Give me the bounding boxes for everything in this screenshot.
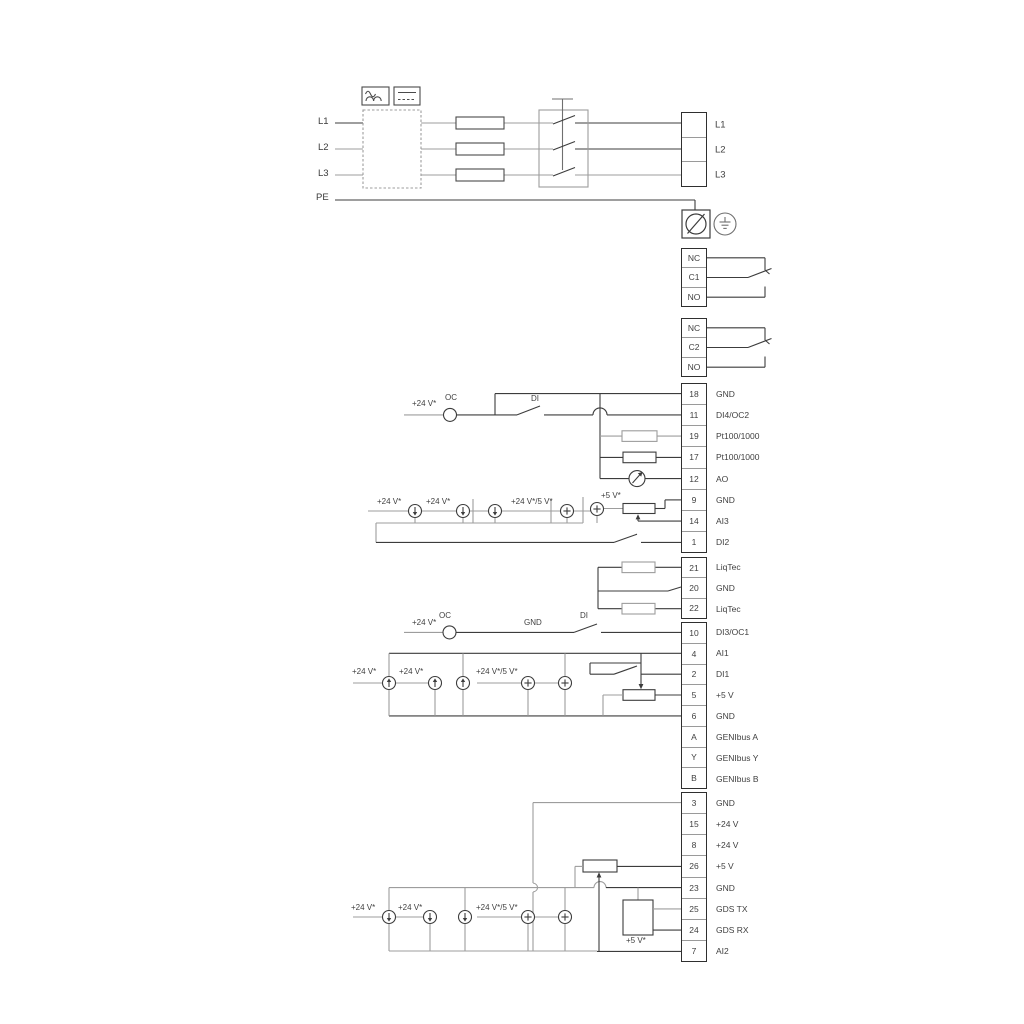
terminal-cell-a: A <box>682 726 706 747</box>
relay1-cell-c1: C1 <box>682 267 706 286</box>
terminal-number: 18 <box>689 389 698 399</box>
power-terminal-label-l1: L1 <box>715 120 726 130</box>
terminal-cell-25: 25 <box>682 898 706 919</box>
terminal-number: 12 <box>689 474 698 484</box>
relay1-cell-no: NO <box>682 287 706 306</box>
io-terminal-block-3: 3 15 8 26 23 25 24 7 <box>681 792 707 962</box>
terminal-number: 19 <box>689 431 698 441</box>
terminal-cell-15: 15 <box>682 813 706 834</box>
annotation-24v: +24 V* <box>351 904 375 912</box>
annotation-di: DI <box>580 612 588 620</box>
terminal-label-6: GND <box>716 712 735 721</box>
annotation-24v: +24 V* <box>412 400 436 408</box>
terminal-number: 26 <box>689 861 698 871</box>
terminal-cell-11: 11 <box>682 404 706 425</box>
annotation-di: DI <box>531 395 539 403</box>
terminal-label-22: LiqTec <box>716 604 741 613</box>
wiring-diagram-canvas: L1 L2 L3 PE L1 L2 L3 NC C1 NO NC C2 NO 1… <box>0 0 1024 1024</box>
power-terminal-label-l3: L3 <box>715 170 726 180</box>
fuse-symbols <box>456 117 504 181</box>
terminal-number: 9 <box>692 495 697 505</box>
terminal-label-3: GND <box>716 798 735 807</box>
terminal-number: 17 <box>689 452 698 462</box>
io-terminal-block-1: 18 11 19 17 12 9 14 1 <box>681 383 707 553</box>
terminal-label-y: GENIbus Y <box>716 753 758 762</box>
terminal-number: Y <box>691 752 697 762</box>
terminal-label-4: AI1 <box>716 649 729 658</box>
pe-screw-terminal-symbol <box>682 210 710 238</box>
terminal-cell-20: 20 <box>682 577 706 597</box>
terminal-number: 8 <box>692 840 697 850</box>
terminal-label-19: Pt100/1000 <box>716 432 759 441</box>
terminal-number: 25 <box>689 904 698 914</box>
relay1-contact-symbol <box>707 258 772 297</box>
terminal-label-23: GND <box>716 883 735 892</box>
terminal-label-21: LiqTec <box>716 563 741 572</box>
earth-ground-icon <box>714 213 736 235</box>
terminal-cell-14: 14 <box>682 510 706 531</box>
relay2-no-label: NO <box>688 362 701 372</box>
terminal-number: 23 <box>689 883 698 893</box>
terminal-label-11: DI4/OC2 <box>716 411 749 420</box>
terminal-cell-b: B <box>682 767 706 788</box>
terminal-number: 21 <box>689 563 698 573</box>
power-terminal-label-l2: L2 <box>715 145 726 155</box>
relay2-cell-no: NO <box>682 357 706 376</box>
relay2-cell-c2: C2 <box>682 337 706 356</box>
relay1-cell-nc: NC <box>682 249 706 267</box>
terminal-label-2: DI1 <box>716 670 729 679</box>
terminal-label-20: GND <box>716 584 735 593</box>
power-section-wires <box>335 110 695 210</box>
annotation-24v: +24 V* <box>426 498 450 506</box>
terminal-number: 4 <box>692 649 697 659</box>
input-label-l1: L1 <box>318 117 329 127</box>
terminal-cell-6: 6 <box>682 705 706 726</box>
terminal-label-26: +5 V <box>716 862 734 871</box>
relay2-nc-label: NC <box>688 323 700 333</box>
terminal-number: 2 <box>692 669 697 679</box>
relay2-terminal-block: NC C2 NO <box>681 318 707 377</box>
annotation-24v-5v: +24 V*/5 V* <box>476 668 518 676</box>
relay1-terminal-block: NC C1 NO <box>681 248 707 307</box>
relay1-no-label: NO <box>688 292 701 302</box>
ai2-gds-cluster-wires <box>353 803 681 952</box>
io-terminal-block-2: 10 4 2 5 6 A Y B <box>681 622 707 789</box>
terminal-cell-10: 10 <box>682 623 706 643</box>
terminal-cell-5: 5 <box>682 684 706 705</box>
terminal-number: 14 <box>689 516 698 526</box>
input-label-l2: L2 <box>318 143 329 153</box>
terminal-cell-19: 19 <box>682 425 706 446</box>
terminal-number: 22 <box>689 603 698 613</box>
ai1-di1-cluster-wires <box>353 653 681 716</box>
input-label-l3: L3 <box>318 169 329 179</box>
terminal-cell-9: 9 <box>682 489 706 510</box>
terminal-number: 1 <box>692 537 697 547</box>
terminal-cell-3: 3 <box>682 793 706 813</box>
terminal-label-1: DI2 <box>716 538 729 547</box>
terminal-label-b: GENIbus B <box>716 774 759 783</box>
terminal-number: 6 <box>692 711 697 721</box>
terminal-cell-l3 <box>682 161 706 186</box>
annotation-24v-5v: +24 V*/5 V* <box>476 904 518 912</box>
annotation-24v: +24 V* <box>412 619 436 627</box>
di3-oc1-row-wires <box>404 624 681 639</box>
relay2-cell-nc: NC <box>682 319 706 337</box>
terminal-cell-23: 23 <box>682 877 706 898</box>
annotation-24v: +24 V* <box>398 904 422 912</box>
annotation-oc: OC <box>439 612 451 620</box>
terminal-cell-17: 17 <box>682 446 706 467</box>
terminal-number: 15 <box>689 819 698 829</box>
annotation-24v: +24 V* <box>377 498 401 506</box>
terminal-label-7: AI2 <box>716 947 729 956</box>
terminal-label-14: AI3 <box>716 517 729 526</box>
terminal-label-10: DI3/OC1 <box>716 628 749 637</box>
terminal-cell-y: Y <box>682 747 706 768</box>
annotation-5v: +5 V* <box>626 937 646 945</box>
liqtec-section-wires <box>598 562 681 614</box>
rectifier-filter-symbol <box>362 87 420 105</box>
annotation-24v: +24 V* <box>399 668 423 676</box>
terminal-label-9: GND <box>716 496 735 505</box>
terminal-cell-7: 7 <box>682 940 706 961</box>
terminal-label-25: GDS TX <box>716 905 748 914</box>
di4-oc2-section-wires <box>404 394 681 487</box>
terminal-label-18: GND <box>716 389 735 398</box>
relay2-c2-label: C2 <box>689 342 700 352</box>
terminal-number: 20 <box>689 583 698 593</box>
annotation-24v-5v: +24 V*/5 V* <box>511 498 553 506</box>
terminal-cell-2: 2 <box>682 664 706 685</box>
terminal-number: A <box>691 732 697 742</box>
terminal-number: 5 <box>692 690 697 700</box>
terminal-number: 3 <box>692 798 697 808</box>
liqtec-terminal-block: 21 20 22 <box>681 557 707 619</box>
terminal-label-a: GENIbus A <box>716 733 758 742</box>
contactor-symbol <box>539 99 588 187</box>
terminal-number: 24 <box>689 925 698 935</box>
terminal-cell-1: 1 <box>682 531 706 552</box>
relay1-c1-label: C1 <box>689 272 700 282</box>
annotation-24v: +24 V* <box>352 668 376 676</box>
terminal-label-8: +24 V <box>716 841 738 850</box>
annotation-gnd: GND <box>524 619 542 627</box>
terminal-label-5: +5 V <box>716 691 734 700</box>
input-label-pe: PE <box>316 193 329 203</box>
terminal-number: B <box>691 773 697 783</box>
annotation-oc: OC <box>445 394 457 402</box>
terminal-cell-26: 26 <box>682 855 706 876</box>
terminal-cell-24: 24 <box>682 919 706 940</box>
terminal-number: 7 <box>692 946 697 956</box>
terminal-cell-18: 18 <box>682 384 706 404</box>
terminal-cell-8: 8 <box>682 834 706 855</box>
relay2-contact-symbol <box>707 328 772 367</box>
terminal-number: 10 <box>689 628 698 638</box>
terminal-cell-l2 <box>682 137 706 162</box>
terminal-label-17: Pt100/1000 <box>716 453 759 462</box>
terminal-cell-4: 4 <box>682 643 706 664</box>
wiring-svg <box>0 0 1024 1024</box>
terminal-cell-22: 22 <box>682 598 706 618</box>
annotation-5v: +5 V* <box>601 492 621 500</box>
terminal-label-15: +24 V <box>716 820 738 829</box>
terminal-number: 11 <box>690 410 699 420</box>
terminal-cell-l1 <box>682 113 706 137</box>
power-terminal-block <box>681 112 707 187</box>
terminal-label-24: GDS RX <box>716 926 749 935</box>
terminal-cell-21: 21 <box>682 558 706 577</box>
relay1-nc-label: NC <box>688 253 700 263</box>
terminal-label-12: AO <box>716 474 728 483</box>
terminal-cell-12: 12 <box>682 468 706 489</box>
